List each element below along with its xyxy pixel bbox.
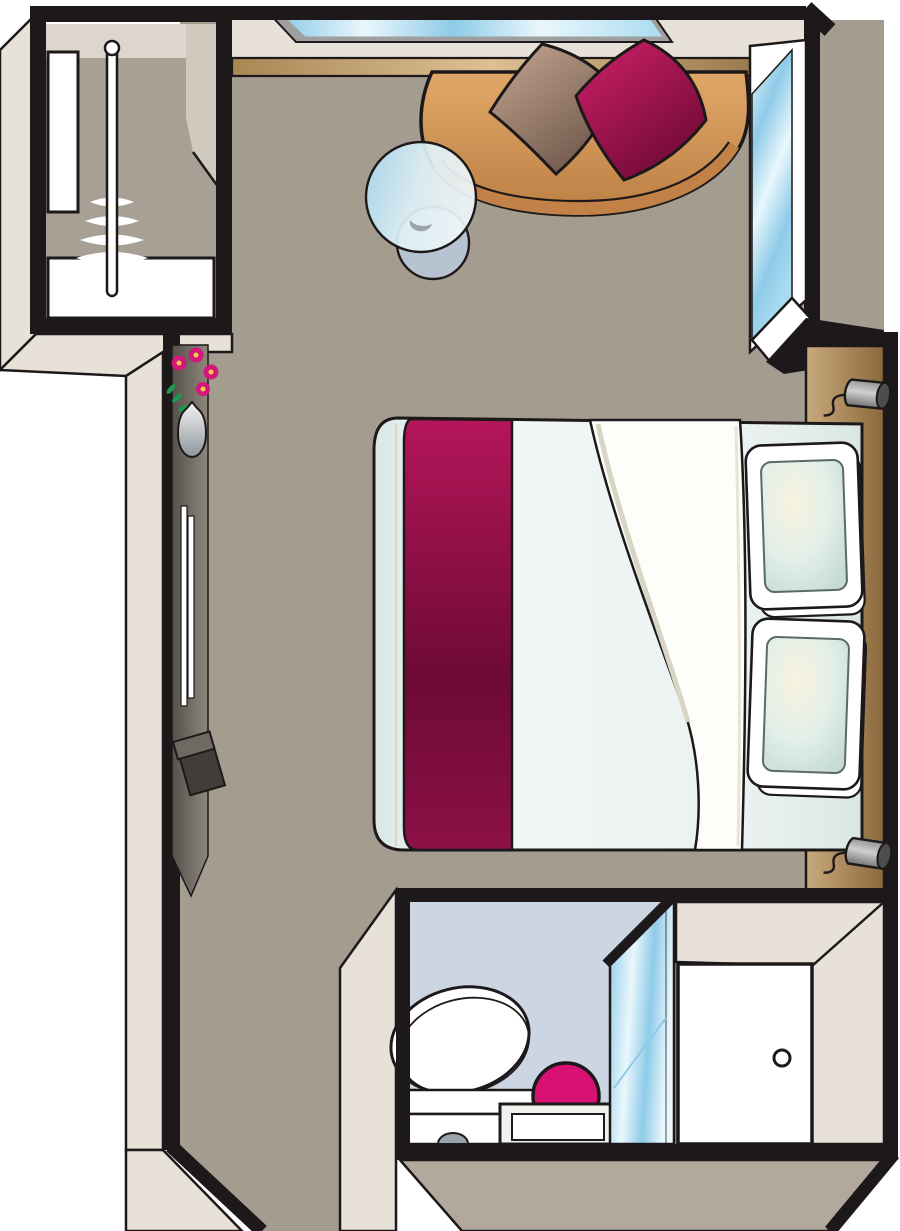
wall-face-left xyxy=(126,352,163,1150)
closet-shelf-bottom xyxy=(48,258,214,318)
hanging-rod-cap xyxy=(105,41,119,55)
pillow-bottom xyxy=(747,618,867,798)
pillow-inner xyxy=(761,460,847,593)
bathroom-wall-top xyxy=(396,888,898,902)
closet-wall-bottom xyxy=(30,318,232,334)
vanity-unit-inner xyxy=(512,1114,604,1140)
floor-plan xyxy=(0,0,900,1231)
wardrobe xyxy=(0,6,232,376)
closet-shelf-left xyxy=(48,52,78,212)
bed-runner xyxy=(404,419,512,850)
wall-mirror-layer xyxy=(188,516,194,698)
entry-door xyxy=(678,964,812,1144)
bathroom xyxy=(340,888,898,1231)
pillow-inner xyxy=(763,637,850,774)
pillow-top xyxy=(745,442,865,618)
door-panel xyxy=(678,964,812,1144)
top-wall-black xyxy=(232,6,806,20)
floor-plan-stage xyxy=(0,0,900,1231)
door-knob xyxy=(774,1050,790,1066)
bathroom-wall-bottom xyxy=(396,1144,898,1160)
hanging-rod xyxy=(107,46,117,296)
wall-face-bottom-band xyxy=(400,1160,884,1231)
right-wall-lower-black xyxy=(884,332,898,1160)
closet-wall-left xyxy=(30,6,46,334)
wall-mirror xyxy=(181,506,187,706)
right-window-glass xyxy=(752,50,792,340)
closet-wall-top xyxy=(30,6,232,22)
double-bed xyxy=(374,418,867,850)
bathroom-wall-left xyxy=(396,888,410,1158)
table-glass-top xyxy=(366,142,476,252)
closet-wall-right xyxy=(216,6,232,334)
